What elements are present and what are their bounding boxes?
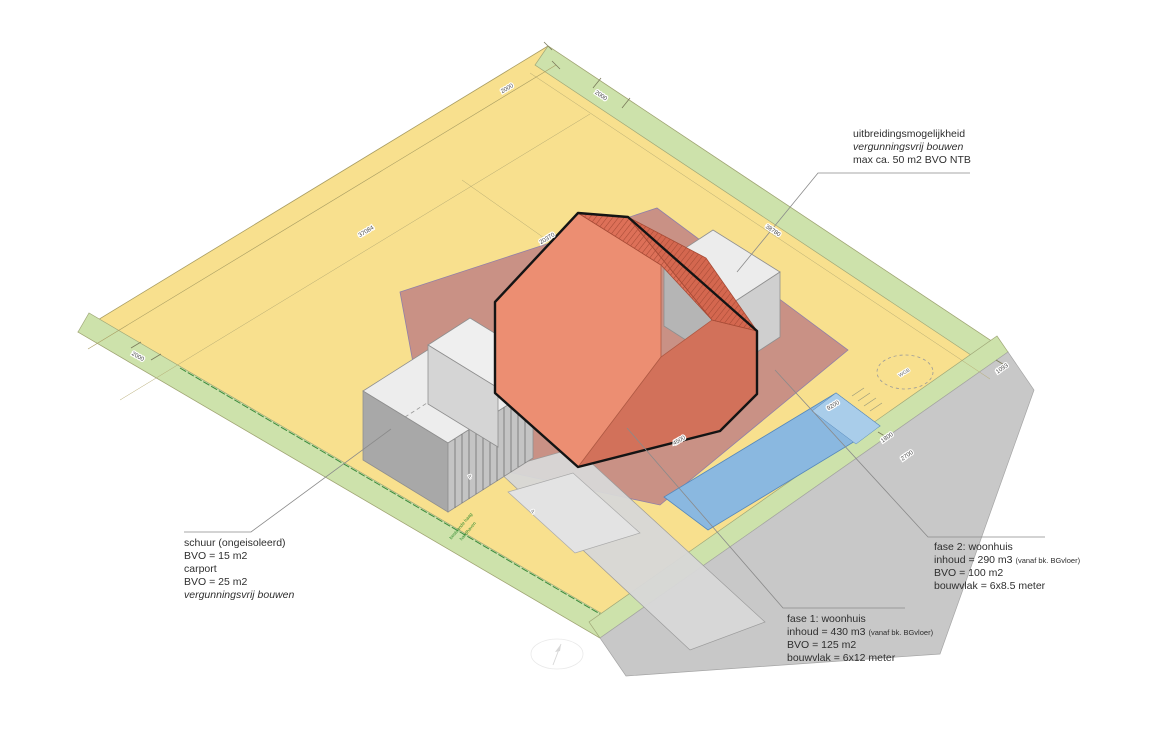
north-arrow	[531, 639, 583, 669]
fase1-bouwvlak: bouwvlak = 6x12 meter	[787, 652, 933, 665]
schuur-line4: BVO = 25 m2	[184, 576, 294, 589]
note-fase1: fase 1: woonhuis inhoud = 430 m3 (vanaf …	[787, 613, 933, 665]
fase2-title: fase 2: woonhuis	[934, 541, 1080, 554]
site-plan-canvas: WGB 2000 2000 37084 20370 387	[0, 0, 1170, 731]
fase2-bvo: BVO = 100 m2	[934, 567, 1080, 580]
schuur-line3: carport	[184, 563, 294, 576]
fase2-inhoud: inhoud = 290 m3 (vanaf bk. BGvloer)	[934, 554, 1080, 567]
axonometric-site-drawing: WGB 2000 2000 37084 20370 387	[0, 0, 1170, 731]
uitbreiding-line1: uitbreidingsmogelijkheid	[853, 128, 971, 141]
fase1-inhoud: inhoud = 430 m3 (vanaf bk. BGvloer)	[787, 626, 933, 639]
note-fase2: fase 2: woonhuis inhoud = 290 m3 (vanaf …	[934, 541, 1080, 593]
fase2-inhoud-value: inhoud = 290 m3	[934, 554, 1013, 566]
schuur-line2: BVO = 15 m2	[184, 550, 294, 563]
note-schuur-carport: schuur (ongeisoleerd) BVO = 15 m2 carpor…	[184, 537, 294, 602]
note-uitbreiding: uitbreidingsmogelijkheid vergunningsvrij…	[853, 128, 971, 167]
fase1-inhoud-note: (vanaf bk. BGvloer)	[868, 628, 933, 637]
fase2-bouwvlak: bouwvlak = 6x8.5 meter	[934, 580, 1080, 593]
schuur-line5: vergunningsvrij bouwen	[184, 589, 294, 602]
fase2-inhoud-note: (vanaf bk. BGvloer)	[1015, 556, 1080, 565]
uitbreiding-line2: vergunningsvrij bouwen	[853, 141, 971, 154]
fase1-inhoud-value: inhoud = 430 m3	[787, 626, 866, 638]
uitbreiding-line3: max ca. 50 m2 BVO NTB	[853, 154, 971, 167]
fase1-bvo: BVO = 125 m2	[787, 639, 933, 652]
fase1-title: fase 1: woonhuis	[787, 613, 933, 626]
schuur-line1: schuur (ongeisoleerd)	[184, 537, 294, 550]
